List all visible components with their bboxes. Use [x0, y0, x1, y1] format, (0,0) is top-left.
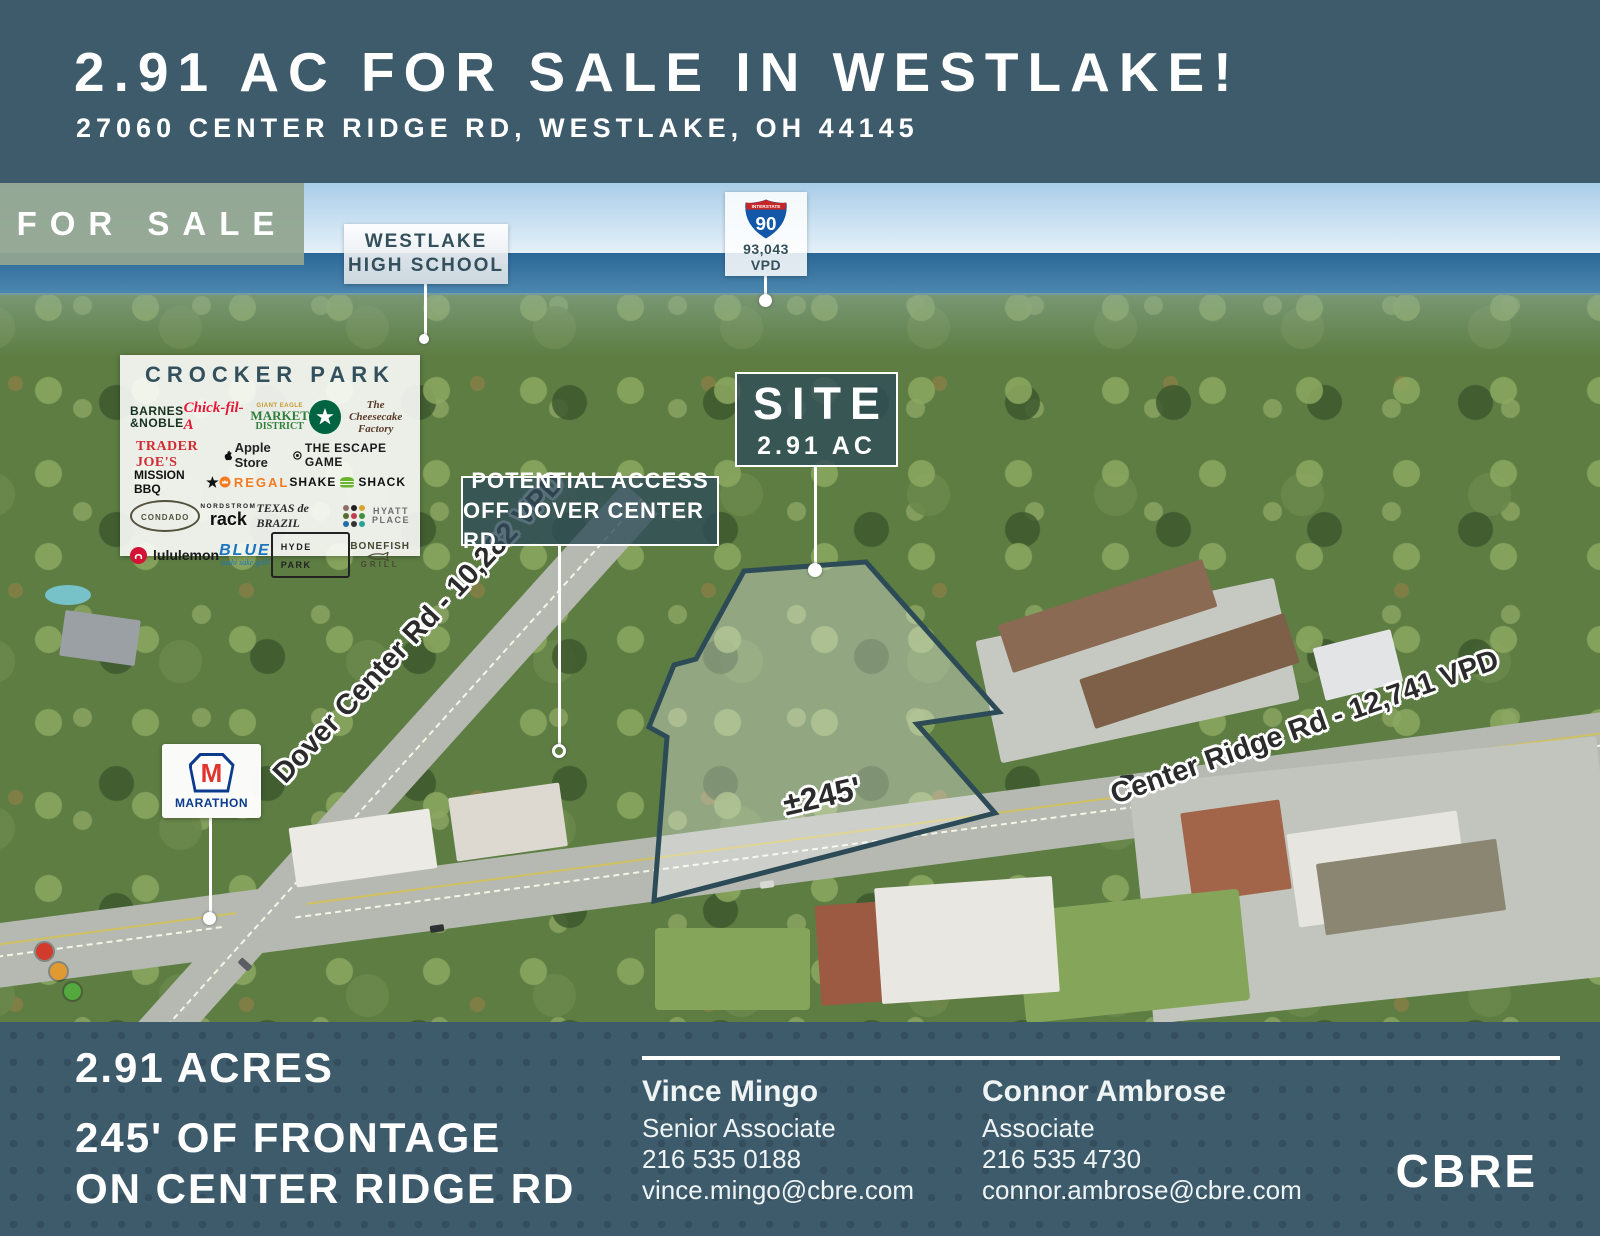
for-sale-label: FOR SALE — [17, 205, 288, 243]
interstate-leader-dot — [759, 294, 772, 307]
contact-connor-ambrose: Connor Ambrose Associate 216 535 4730 co… — [982, 1074, 1302, 1205]
stat-frontage-line1: 245' OF FRONTAGE — [75, 1114, 575, 1162]
high-school-line1: WESTLAKE — [365, 230, 488, 254]
access-tag: POTENTIAL ACCESS OFF DOVER CENTER RD — [461, 476, 719, 546]
starbucks-icon — [309, 400, 341, 434]
svg-text:90: 90 — [756, 213, 777, 234]
contact-email: vince.mingo@cbre.com — [642, 1175, 914, 1206]
tenant-row-1: BARNES &NOBLE Chick-fil-A GIANT EAGLE MA… — [130, 392, 410, 442]
escape-game-icon — [293, 450, 302, 461]
tenant-bonefish-grill: BONEFISH GRILL — [350, 542, 410, 569]
high-school-leader-line — [424, 284, 427, 336]
access-leader-line — [558, 546, 561, 744]
contact-title: Associate — [982, 1113, 1302, 1144]
tenant-blue-sushi: BLUE sushi sake grill — [219, 543, 271, 567]
apple-icon — [223, 449, 232, 462]
high-school-tag: WESTLAKE HIGH SCHOOL — [344, 224, 508, 284]
crocker-park-panel: CROCKER PARK BARNES &NOBLE Chick-fil-A G… — [120, 355, 420, 556]
tenant-hyatt-place: HYATT PLACE — [343, 505, 410, 527]
site-title: SITE — [744, 378, 889, 430]
burger-icon — [339, 476, 355, 488]
interstate-leader-line — [764, 276, 767, 296]
svg-text:INTERSTATE: INTERSTATE — [752, 204, 781, 209]
marathon-leader-dot — [203, 912, 216, 925]
tenant-barnes-noble: BARNES &NOBLE — [130, 405, 184, 429]
stat-acres: 2.91 ACRES — [75, 1044, 575, 1092]
tenant-shake-shack: SHAKE SHACK — [289, 475, 406, 489]
tenant-apple-store: Apple Store — [223, 440, 293, 470]
regal-crown-icon — [219, 476, 231, 488]
marathon-hexagon-icon: M — [189, 753, 235, 793]
access-line1: POTENTIAL ACCESS — [471, 466, 708, 496]
access-line2: OFF DOVER CENTER RD — [463, 496, 717, 555]
cbre-logo: CBRE — [1396, 1144, 1538, 1198]
access-leader-dot — [552, 744, 566, 758]
contact-phone: 216 535 0188 — [642, 1144, 914, 1175]
lululemon-icon — [130, 547, 147, 564]
site-tag: SITE 2.91 AC — [735, 372, 898, 467]
tenant-row-3: MISSION BBQ REGAL SHAKE SHACK — [130, 468, 410, 496]
footer-band: 2.91 ACRES 245' OF FRONTAGE ON CENTER RI… — [0, 1022, 1600, 1236]
tenant-cheesecake-factory: The Cheesecake Factory — [341, 399, 410, 435]
header-band: 2.91 AC FOR SALE IN WESTLAKE! 27060 CENT… — [0, 0, 1600, 183]
contact-title: Senior Associate — [642, 1113, 914, 1144]
tenant-condado: CONDADO — [130, 500, 200, 532]
tenant-mission-bbq: MISSION BBQ — [134, 468, 219, 496]
interstate-shield-icon: INTERSTATE 90 — [742, 197, 790, 241]
contact-email: connor.ambrose@cbre.com — [982, 1175, 1302, 1206]
for-sale-badge: FOR SALE — [0, 183, 304, 265]
interstate-traffic-unit: VPD — [751, 257, 781, 273]
contact-phone: 216 535 4730 — [982, 1144, 1302, 1175]
marathon-tag: M MARATHON — [162, 744, 261, 818]
tenant-market-district: GIANT EAGLE MARKET DISTRICT — [250, 403, 309, 432]
tenant-nordstrom-rack: NORDSTROM rack — [200, 504, 256, 528]
flyer: 2.91 AC FOR SALE IN WESTLAKE! 27060 CENT… — [0, 0, 1600, 1236]
tenant-escape-game: THE ESCAPE GAME — [293, 441, 404, 469]
tenant-trader-joes: TRADER JOE'S — [136, 439, 223, 471]
hyatt-dots-icon — [343, 505, 365, 527]
contact-vince-mingo: Vince Mingo Senior Associate 216 535 018… — [642, 1074, 914, 1205]
tenant-row-4: CONDADO NORDSTROM rack TEXAS de BRAZIL H… — [130, 496, 410, 536]
interstate-traffic-count: 93,043 — [743, 241, 789, 257]
high-school-line2: HIGH SCHOOL — [348, 254, 504, 278]
stat-frontage-line2: ON CENTER RIDGE RD — [75, 1165, 575, 1213]
property-stats: 2.91 ACRES 245' OF FRONTAGE ON CENTER RI… — [75, 1044, 575, 1213]
crocker-park-title: CROCKER PARK — [130, 362, 410, 388]
footer-divider — [642, 1056, 1560, 1060]
star-icon — [206, 475, 219, 490]
tenant-row-5: lululemon BLUE sushi sake grill HYDE PAR… — [130, 536, 410, 574]
contact-name: Vince Mingo — [642, 1074, 914, 1109]
page-title: 2.91 AC FOR SALE IN WESTLAKE! — [74, 40, 1241, 104]
property-address: 27060 CENTER RIDGE RD, WESTLAKE, OH 4414… — [76, 113, 919, 144]
tenant-chick-fil-a: Chick-fil-A — [184, 400, 251, 434]
marathon-name: MARATHON — [175, 796, 248, 810]
tenant-hyde-park: HYDE PARK — [271, 532, 351, 578]
high-school-leader-dot — [419, 334, 429, 344]
interstate-90-tag: INTERSTATE 90 93,043 VPD — [725, 192, 807, 276]
marathon-leader-line — [209, 818, 212, 914]
tenant-regal: REGAL — [219, 475, 290, 490]
tenant-lululemon: lululemon — [130, 547, 219, 564]
contact-name: Connor Ambrose — [982, 1074, 1302, 1109]
marathon-initial: M — [201, 760, 223, 786]
tenant-row-2: TRADER JOE'S Apple Store THE ESCAPE GAME — [130, 442, 410, 468]
site-leader-dot — [808, 563, 822, 577]
site-area: 2.91 AC — [757, 432, 876, 461]
tenant-texas-de-brazil: TEXAS de BRAZIL — [256, 501, 343, 531]
site-leader-line — [814, 467, 817, 565]
